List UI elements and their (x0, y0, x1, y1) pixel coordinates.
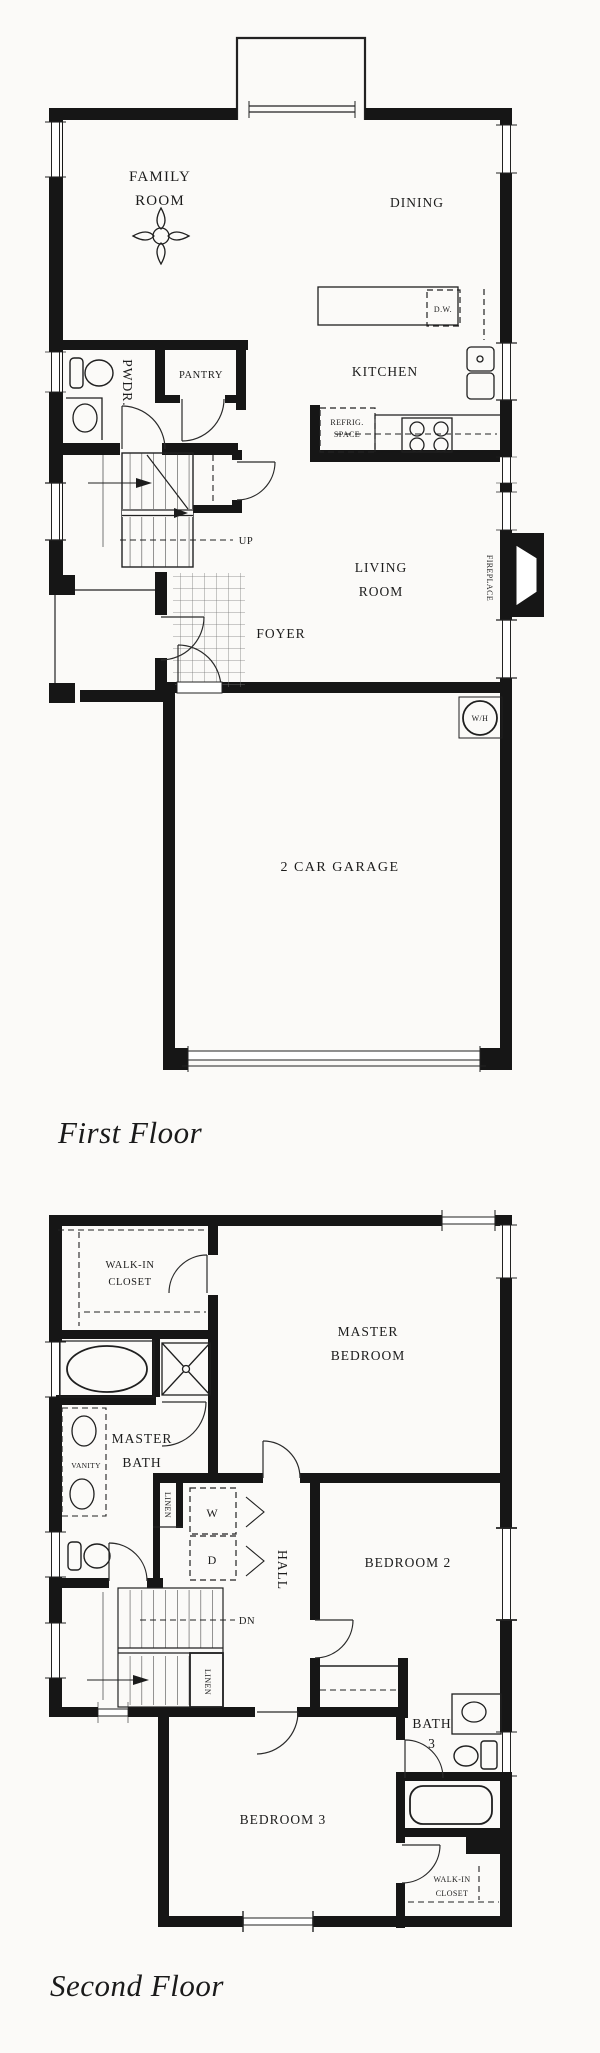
bath3-label-1: BATH (412, 1716, 451, 1731)
vanity-sink-1 (72, 1416, 96, 1446)
master-bath-label-2: BATH (122, 1455, 161, 1470)
pantry: PANTRY (179, 370, 224, 441)
living-room-label-2: ROOM (359, 584, 404, 599)
foyer: FOYER (161, 573, 306, 693)
bathtub-3 (410, 1786, 492, 1824)
toilet (70, 358, 113, 388)
garage: W/H 2 CAR GARAGE (163, 682, 512, 1072)
dryer-label: D (208, 1553, 217, 1567)
refrig-label-1: REFRIG. (330, 418, 363, 427)
master-walkin-closet: WALK-IN CLOSET (58, 1230, 207, 1326)
fireplace: FIREPLACE (485, 533, 544, 617)
dining-label: DINING (390, 195, 444, 210)
master-bedroom-label-1: MASTER (338, 1324, 399, 1339)
dn-label: DN (239, 1616, 255, 1627)
water-heater: W/H (459, 697, 502, 738)
pwdr-label: PWDR. (120, 359, 135, 406)
family-room-label-1: FAMILY (129, 169, 191, 185)
walkin-closet-label-2: CLOSET (108, 1277, 151, 1288)
powder-room: PWDR. (66, 358, 165, 449)
porch (49, 575, 163, 703)
bedroom-2: BEDROOM 2 (315, 1555, 451, 1690)
stairs-down: DN LINEN (87, 1588, 298, 1754)
bathtub (67, 1346, 147, 1392)
water-heater-label: W/H (472, 714, 489, 723)
ceiling-fan-icon (133, 208, 189, 264)
bay-window (237, 38, 365, 120)
laundry: W D (190, 1488, 264, 1580)
walkin-closet2-label-2: CLOSET (436, 1889, 469, 1898)
foyer-label: FOYER (256, 626, 305, 641)
dishwasher-label: D.W. (434, 305, 452, 314)
garage-label: 2 CAR GARAGE (280, 860, 399, 875)
fireplace-label: FIREPLACE (485, 555, 494, 601)
bedroom3-label: BEDROOM 3 (240, 1812, 327, 1827)
linen-upper-label: LINEN (163, 1492, 172, 1518)
toilet-3 (454, 1741, 497, 1769)
second-floor-title: Second Floor (50, 1968, 224, 2003)
walkin-closet-label-1: WALK-IN (105, 1260, 154, 1271)
second-floor-plan: WALK-IN CLOSET MASTER BEDROOM MASTER BAT… (45, 1210, 517, 2003)
powder-sink (66, 398, 102, 440)
stove (402, 418, 452, 452)
shower (162, 1343, 210, 1395)
pantry-label: PANTRY (179, 370, 223, 381)
kitchen-sink (467, 347, 494, 399)
bedroom2-label: BEDROOM 2 (365, 1555, 452, 1570)
linen-closet-lower: LINEN (190, 1653, 223, 1707)
family-room-label-2: ROOM (135, 193, 185, 209)
floorplan-page: FIREPLACE FAMILY ROOM DINING D.W. (0, 0, 600, 2053)
kitchen-label: KITCHEN (352, 364, 418, 379)
vanity-sink-2 (70, 1479, 94, 1509)
first-floor-title: First Floor (57, 1115, 203, 1150)
master-bedroom-label-2: BEDROOM (331, 1348, 406, 1363)
stairs-up: UP (88, 453, 275, 567)
master-bath-label-1: MASTER (112, 1431, 173, 1446)
refrig-label-2: SPACE (334, 430, 360, 439)
bath3-sink (452, 1694, 501, 1734)
bath-3: BATH 3 (405, 1694, 501, 1824)
first-floor-plan: FIREPLACE FAMILY ROOM DINING D.W. (45, 38, 544, 1150)
up-label: UP (239, 536, 254, 547)
vanity-label: VANITY (71, 1461, 101, 1470)
master-bath: MASTER BATH VANITY (60, 1341, 210, 1581)
living-room-label-1: LIVING (355, 560, 408, 575)
linen-lower-label: LINEN (203, 1669, 212, 1695)
hall-label: HALL (275, 1550, 290, 1590)
hall: HALL (263, 1441, 300, 1590)
walkin-closet2-label-1: WALK-IN (433, 1875, 470, 1884)
kitchen-area: D.W. REFRIG. SPACE KITCHEN (318, 287, 500, 452)
garage-door (182, 1046, 486, 1072)
floorplan-drawing: FIREPLACE FAMILY ROOM DINING D.W. (0, 0, 600, 2053)
washer-label: W (206, 1506, 218, 1520)
toilet-2 (68, 1542, 110, 1570)
